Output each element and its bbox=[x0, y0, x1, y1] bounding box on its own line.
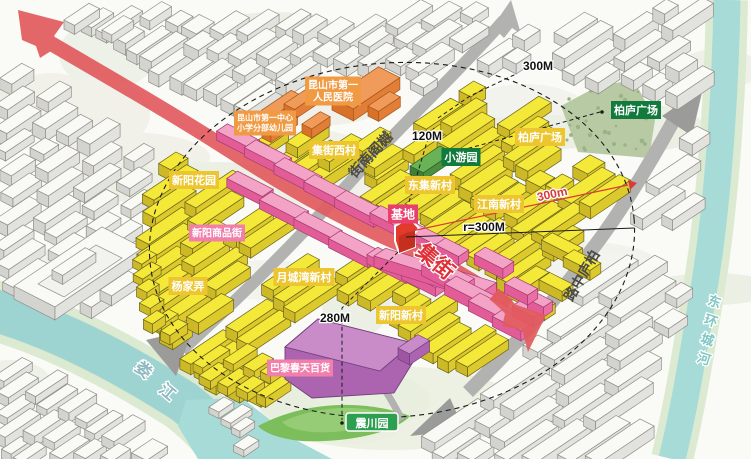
svg-text:新阳花园: 新阳花园 bbox=[172, 173, 216, 187]
svg-text:基地: 基地 bbox=[390, 207, 415, 222]
svg-text:集街西村: 集街西村 bbox=[311, 143, 356, 157]
svg-text:小游园: 小游园 bbox=[444, 150, 478, 164]
svg-text:280M: 280M bbox=[320, 311, 350, 325]
svg-text:柏庐广场: 柏庐广场 bbox=[518, 130, 562, 144]
svg-text:昆山市第一中心: 昆山市第一中心 bbox=[237, 113, 293, 123]
svg-text:300M: 300M bbox=[523, 59, 553, 73]
svg-text:江南新村: 江南新村 bbox=[477, 197, 521, 211]
svg-text:柏庐广场: 柏庐广场 bbox=[614, 103, 658, 117]
svg-text:月城湾新村: 月城湾新村 bbox=[276, 270, 332, 284]
svg-text:杨家弄: 杨家弄 bbox=[172, 279, 205, 293]
svg-text:r=300M: r=300M bbox=[463, 220, 505, 234]
svg-text:人民医院: 人民医院 bbox=[313, 91, 353, 104]
svg-text:120M: 120M bbox=[412, 129, 442, 143]
svg-text:新阳商品街: 新阳商品街 bbox=[192, 227, 242, 240]
svg-text:巴黎春天百货: 巴黎春天百货 bbox=[270, 362, 330, 375]
svg-text:新阳新村: 新阳新村 bbox=[379, 308, 423, 322]
svg-text:东集新村: 东集新村 bbox=[408, 178, 452, 192]
svg-text:昆山市第一: 昆山市第一 bbox=[308, 79, 358, 92]
svg-text:震川园: 震川园 bbox=[355, 417, 389, 430]
svg-text:小学分部幼儿园: 小学分部幼儿园 bbox=[236, 123, 293, 133]
